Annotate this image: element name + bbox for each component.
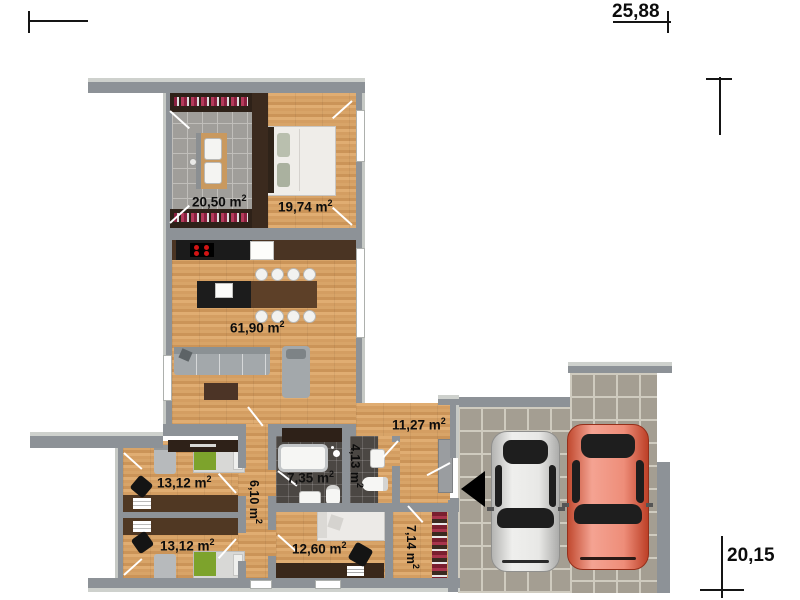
wall-left-lower [115,448,123,578]
dining-chair [303,310,316,323]
wc-toilet [362,477,388,491]
room-label-bedroom: 19,74 m2 [278,198,333,215]
car-white-side-window-right [549,465,556,508]
dim-line-right-upper [719,77,721,135]
car-red-mirror-right [646,503,653,507]
office-sofa [317,511,385,541]
room-label-kid1: 13,12 m2 [157,474,212,491]
car-white [491,431,560,572]
wardrobe-bottom-clothes [174,213,248,222]
room-label-bath: 7,35 m2 [287,469,334,486]
dining-chair [271,268,284,281]
bed-pillow-2 [277,163,290,187]
chaise-pillow [286,349,306,359]
bathtub [278,444,328,472]
island-sink [215,283,233,298]
vanity-sink-1 [204,138,222,160]
kid1-shelf [190,444,216,447]
wall-hall-right-b [450,498,459,512]
entrance-arrow-icon [461,471,485,507]
kitchen-counter-dark [176,240,252,260]
wall-corridor-left-c [238,561,246,578]
dining-chair [255,268,268,281]
coffee-table [204,383,238,400]
dim-tick-right-upper [706,78,732,80]
car-red-side-window-left [572,459,580,503]
wall-bottom [88,578,460,592]
sofa [174,347,270,375]
dim-tick-top-right [667,11,669,33]
wall-south-mid [268,503,458,512]
wall-corridor-left-b [238,496,246,533]
pantry-shelves [432,512,447,581]
bed-fold-line [299,129,300,191]
room-label-living: 61,90 m2 [230,319,285,336]
wall-garage-top [568,362,672,373]
room-label-kid2: 13,12 m2 [160,537,215,554]
wall-corridor-left-a [238,436,246,468]
dim-line-top-left [28,20,88,22]
wall-corridor-right-c [268,556,276,578]
dining-table [251,281,317,308]
window-living-right [356,248,365,338]
car-red-front-line [580,557,636,560]
car-red-rear-window [581,434,635,458]
wall-hall-top-stub [438,395,459,405]
kitchen-sink [250,241,274,260]
bath-cabinet [282,428,342,442]
car-red [567,424,649,570]
room-label-pantry: 7,14 m2 [404,525,421,569]
car-white-rear-window [503,440,549,464]
office-sofa-pillow [327,514,343,530]
bed-pillow-1 [277,133,290,157]
car-white-windshield [497,508,553,527]
wall-pantry-right [448,500,458,592]
cooktop-icon [190,243,214,257]
wall-corridor-right-b [268,496,276,530]
room-label-dressing: 20,50 m2 [192,193,247,210]
car-white-front-line [502,560,549,563]
office-sofa-arm [318,512,327,538]
vanity-sink-2 [204,162,222,184]
wall-living-south-a [163,424,246,436]
window-bottom-office [315,580,341,589]
kid1-papers [133,498,151,509]
wall-hall-right-a [450,403,459,458]
wall-bedroom-kitchen [172,228,356,240]
bed-headboard [267,127,274,193]
dining-chair [287,310,300,323]
car-red-side-window-right [636,459,644,503]
room-label-office: 12,60 m2 [292,540,347,557]
double-bed [266,126,336,196]
chaise-lounge [282,346,310,398]
dining-chair [303,268,316,281]
window-left-living [163,355,172,401]
dining-chair [287,268,300,281]
dim-tick-top-left [28,11,30,33]
window-bedroom-right-top [356,110,365,162]
floor-plan: 25,88 20,15 [0,0,800,600]
dim-width-label: 25,88 [612,1,660,23]
wardrobe-top-clothes [174,97,248,106]
car-white-mirror-right [558,507,565,511]
kid1-desk [123,495,238,512]
wall-carport-beam [459,397,570,407]
dim-line-top-right [613,21,671,23]
wall-wing-left [30,432,163,448]
kid2-papers [133,521,151,532]
car-white-side-window-left [495,465,502,508]
room-label-wc: 4,13 m2 [348,444,365,488]
room-label-corridor: 6,10 m2 [247,480,264,524]
kid1-wardrobe [168,440,238,452]
dressing-partition [252,93,268,228]
room-label-hall: 11,27 m2 [392,416,446,433]
car-red-mirror-left [562,503,569,507]
wall-office-pantry [385,512,393,578]
office-desk [276,563,384,578]
wall-top [88,78,365,93]
wall-kid-divider [123,512,238,518]
burner-dots [194,245,199,250]
window-bottom-corridor [250,580,272,589]
wc-sink [370,449,385,468]
dim-tick-bottom-right [700,589,744,591]
wall-garage-right [657,462,670,593]
kid2-blanket [194,552,216,576]
vanity-faucet-icon [189,158,197,166]
office-notebook [347,566,364,576]
shower-head-icon [333,450,340,457]
wall-corridor-right-a [268,436,276,470]
dim-height-label: 20,15 [727,545,775,567]
car-white-mirror-left [487,507,494,511]
car-red-windshield [574,504,641,524]
